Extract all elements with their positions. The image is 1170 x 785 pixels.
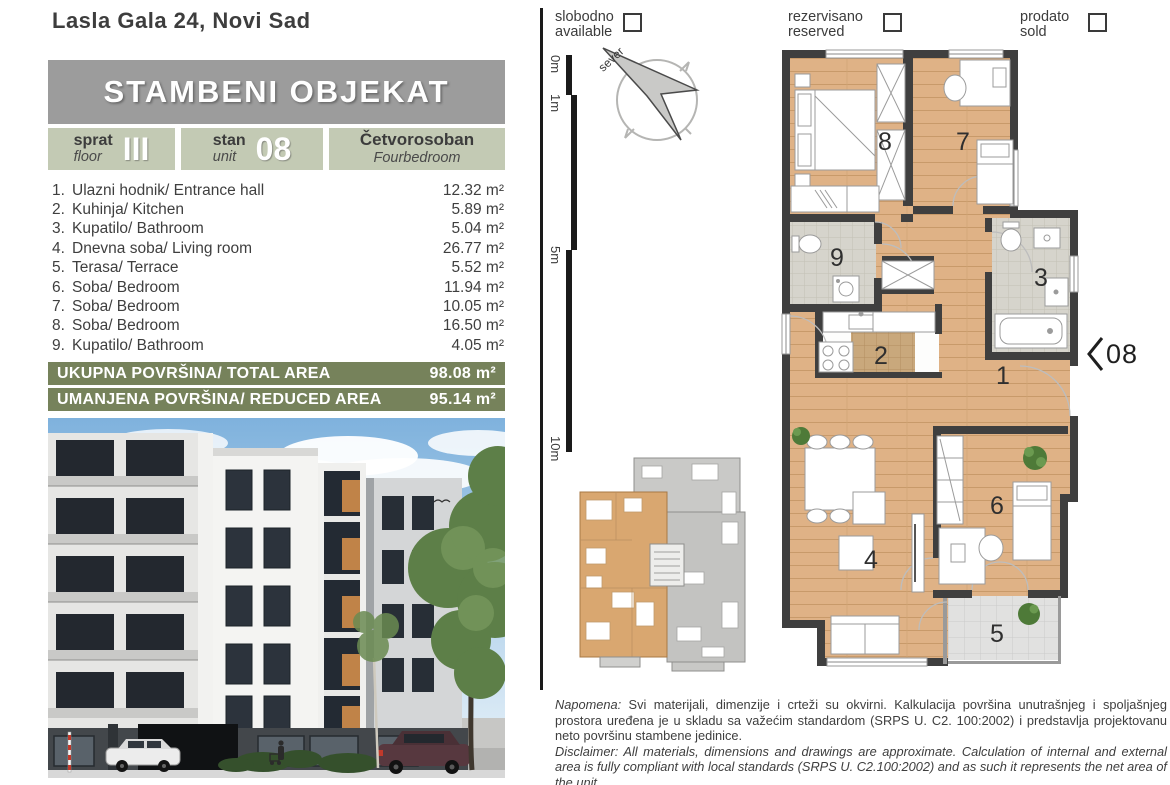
kitchen-sink: [849, 315, 873, 329]
reduced-area-label: UMANJENA POVRŠINA/ REDUCED AREA: [57, 391, 382, 409]
terrace-floor: [948, 596, 1060, 660]
key-plan: [572, 452, 758, 674]
room-label-8: 8: [878, 128, 892, 156]
chair: [979, 535, 1003, 561]
compass-icon: sever: [585, 38, 715, 153]
unit-value: 08: [256, 131, 292, 168]
bathtub: [995, 314, 1067, 348]
page-title: Lasla Gala 24, Novi Sad: [52, 8, 311, 34]
chair: [944, 75, 966, 101]
entrance-unit-number: 08: [1106, 339, 1138, 370]
scale-mark-1m: 1m: [548, 94, 563, 112]
disclaimer: Napomena: Svi materijali, dimenzije i cr…: [555, 697, 1167, 785]
project-banner-text: STAMBENI OBJEKAT: [103, 74, 449, 110]
type-label-en: Fourbedroom: [373, 149, 460, 167]
main-floor-plan: 1 2 3 4 5 6 7 8 9: [757, 46, 1102, 698]
chevron-left-icon: [1086, 336, 1104, 372]
project-banner: STAMBENI OBJEKAT: [48, 60, 505, 124]
total-area-bar: UKUPNA POVRŠINA/ TOTAL AREA 98.08 m²: [48, 362, 505, 385]
floor-label-sr: sprat: [74, 132, 113, 149]
room-label-7: 7: [956, 128, 970, 156]
unit-label-sr: stan: [213, 132, 246, 149]
striped-pole: [68, 732, 71, 772]
toilet: [1001, 229, 1021, 251]
available-checkbox[interactable]: [623, 13, 642, 32]
room-list-item: 3.Kupatilo/ Bathroom5.04 m²: [52, 220, 504, 239]
room-list-item: 7.Soba/ Bedroom10.05 m²: [52, 297, 504, 316]
scale-bar-segment: [571, 95, 577, 250]
type-info-box: Četvorosoban Fourbedroom: [329, 128, 505, 170]
room-label-4: 4: [864, 546, 878, 574]
type-label-sr: Četvorosoban: [360, 131, 474, 149]
room-list-item: 8.Soba/ Bedroom16.50 m²: [52, 317, 504, 336]
floor-value: III: [123, 131, 150, 168]
legend-available: slobodno available: [555, 10, 614, 39]
scale-bar-segment: [566, 250, 572, 452]
room-label-1: 1: [996, 362, 1010, 390]
total-area-value: 98.08 m²: [430, 365, 496, 383]
room-list-item: 2.Kuhinja/ Kitchen5.89 m²: [52, 200, 504, 219]
toilet-tank: [1003, 222, 1019, 228]
room-label-9: 9: [830, 244, 844, 272]
scale-mark-0m: 0m: [548, 55, 563, 73]
building-left-wing: [48, 433, 213, 733]
room-list-item: 4.Dnevna soba/ Living room26.77 m²: [52, 239, 504, 258]
scale-mark-5m: 5m: [548, 246, 563, 264]
unit-label-en: unit: [213, 149, 246, 166]
floorplan-flyer-page: Lasla Gala 24, Novi Sad STAMBENI OBJEKAT…: [0, 0, 1170, 785]
room-list-item: 5.Terasa/ Terrace5.52 m²: [52, 259, 504, 278]
reduced-area-value: 95.14 m²: [430, 391, 496, 409]
panel-divider: [540, 8, 543, 690]
floor-label-en: floor: [74, 149, 113, 166]
washbasin: [1034, 228, 1060, 248]
floor-info-box: sprat floor III: [48, 128, 175, 170]
room-label-2: 2: [874, 342, 888, 370]
room-list-item: 1.Ulazni hodnik/ Entrance hall12.32 m²: [52, 181, 504, 200]
building-photo: [48, 418, 505, 778]
room-label-5: 5: [990, 620, 1004, 648]
kitchen-counter: [823, 312, 935, 332]
keyplan-balcony: [672, 662, 724, 671]
reduced-area-bar: UMANJENA POVRŠINA/ REDUCED AREA 95.14 m²: [48, 388, 505, 411]
scale-mark-10m: 10m: [548, 436, 563, 461]
scale-bar-segment: [566, 55, 572, 95]
toilet-tank: [792, 236, 799, 252]
room-list: 1.Ulazni hodnik/ Entrance hall12.32 m² 2…: [52, 181, 504, 356]
room-label-6: 6: [990, 492, 1004, 520]
legend-reserved: rezervisano reserved: [788, 10, 863, 39]
sold-checkbox[interactable]: [1088, 13, 1107, 32]
building-center-tower: [213, 448, 318, 733]
room-list-item: 9.Kupatilo/ Bathroom4.05 m²: [52, 336, 504, 355]
toilet: [799, 235, 821, 253]
dresser: [791, 186, 879, 212]
room-list-item: 6.Soba/ Bedroom11.94 m²: [52, 278, 504, 297]
disclaimer-en: Disclaimer: All materials, dimensions an…: [555, 744, 1167, 785]
tv-stand: [912, 514, 924, 592]
building-balcony-column: [318, 463, 366, 733]
keyplan-balcony: [600, 657, 640, 667]
room-label-3: 3: [1034, 264, 1048, 292]
unit-info-box: stan unit 08: [181, 128, 323, 170]
total-area-label: UKUPNA POVRŠINA/ TOTAL AREA: [57, 365, 331, 383]
legend-sold: prodato sold: [1020, 10, 1069, 39]
disclaimer-sr: Napomena: Svi materijali, dimenzije i cr…: [555, 697, 1167, 744]
armchair: [853, 492, 885, 524]
entrance-marker: 08: [1086, 336, 1138, 372]
reserved-checkbox[interactable]: [883, 13, 902, 32]
